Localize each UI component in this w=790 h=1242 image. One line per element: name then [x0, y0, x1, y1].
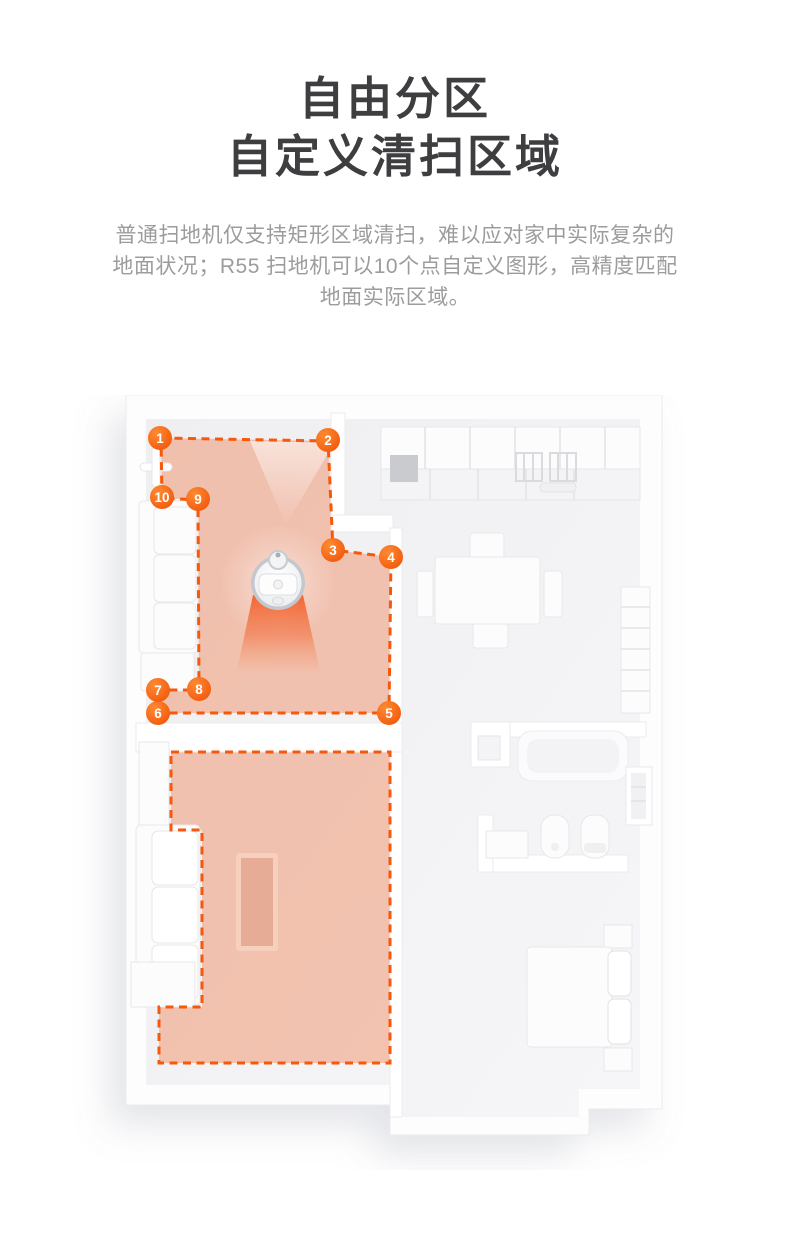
svg-text:8: 8 [195, 682, 203, 697]
page-title-line-1: 自由分区 [0, 70, 790, 128]
description-line-1: 普通扫地机仅支持矩形区域清扫，难以应对家中实际复杂的 [45, 220, 745, 251]
nightstand-bottom [604, 1048, 632, 1071]
zone-point-marker-10: 10 [150, 485, 174, 509]
dining-chair-left [417, 571, 433, 617]
bidet [541, 815, 569, 858]
small-room-sofa [139, 501, 198, 653]
zone-point-marker-1: 1 [148, 426, 172, 450]
svg-text:2: 2 [324, 433, 332, 448]
dining-chair-bottom [473, 623, 508, 648]
toilet [581, 815, 609, 858]
floor-plan-svg: 1 2 3 4 5 6 7 8 9 10 [0, 395, 790, 1170]
zone-point-marker-7: 7 [146, 678, 170, 702]
svg-text:3: 3 [329, 543, 337, 558]
dining-chair-right [544, 571, 562, 617]
svg-text:6: 6 [154, 706, 162, 721]
wall-top-center [331, 413, 345, 517]
zone-point-marker-9: 9 [186, 487, 210, 511]
zone-point-marker-8: 8 [187, 677, 211, 701]
description-line-2: 地面状况；R55 扫地机可以10个点自定义图形，高精度匹配 [45, 251, 745, 282]
zone-point-marker-2: 2 [316, 428, 340, 452]
robot-button [274, 580, 283, 589]
svg-text:9: 9 [194, 492, 202, 507]
zone-point-marker-6: 6 [146, 701, 170, 725]
page-description: 普通扫地机仅支持矩形区域清扫，难以应对家中实际复杂的 地面状况；R55 扫地机可… [45, 220, 745, 313]
bathroom-cabinet [486, 831, 528, 858]
zone-point-marker-5: 5 [377, 701, 401, 725]
kitchen-sink [390, 455, 418, 482]
pillow-1 [608, 951, 631, 996]
bookshelf [621, 587, 650, 713]
svg-text:7: 7 [154, 683, 162, 698]
bathtub [518, 731, 628, 781]
living-console [139, 742, 169, 830]
bathroom-door [626, 767, 652, 825]
coffee-table [236, 853, 278, 951]
zone-point-marker-4: 4 [379, 545, 403, 569]
floor-plan: 1 2 3 4 5 6 7 8 9 10 [0, 395, 790, 1170]
header: 自由分区 自定义清扫区域 普通扫地机仅支持矩形区域清扫，难以应对家中实际复杂的 … [0, 70, 790, 313]
svg-text:4: 4 [387, 550, 395, 565]
living-end-table [131, 962, 195, 1007]
page-title: 自由分区 自定义清扫区域 [0, 70, 790, 186]
wall-hallway [390, 528, 402, 1117]
wall-kitchen-ledge [331, 515, 393, 532]
nightstand-top [604, 925, 632, 948]
robot-dock-button [273, 597, 284, 605]
dining-chair-top [470, 533, 504, 559]
wall-room-divider [136, 723, 402, 752]
svg-text:1: 1 [156, 431, 164, 446]
svg-text:10: 10 [154, 490, 169, 505]
pillow-2 [608, 999, 631, 1044]
description-line-3: 地面实际区域。 [45, 282, 745, 313]
zone-point-marker-3: 3 [321, 538, 345, 562]
dining-table [435, 557, 540, 624]
svg-text:5: 5 [385, 706, 393, 721]
page-title-line-2: 自定义清扫区域 [0, 128, 790, 186]
kitchen-counter [381, 427, 640, 500]
bed [527, 947, 612, 1047]
